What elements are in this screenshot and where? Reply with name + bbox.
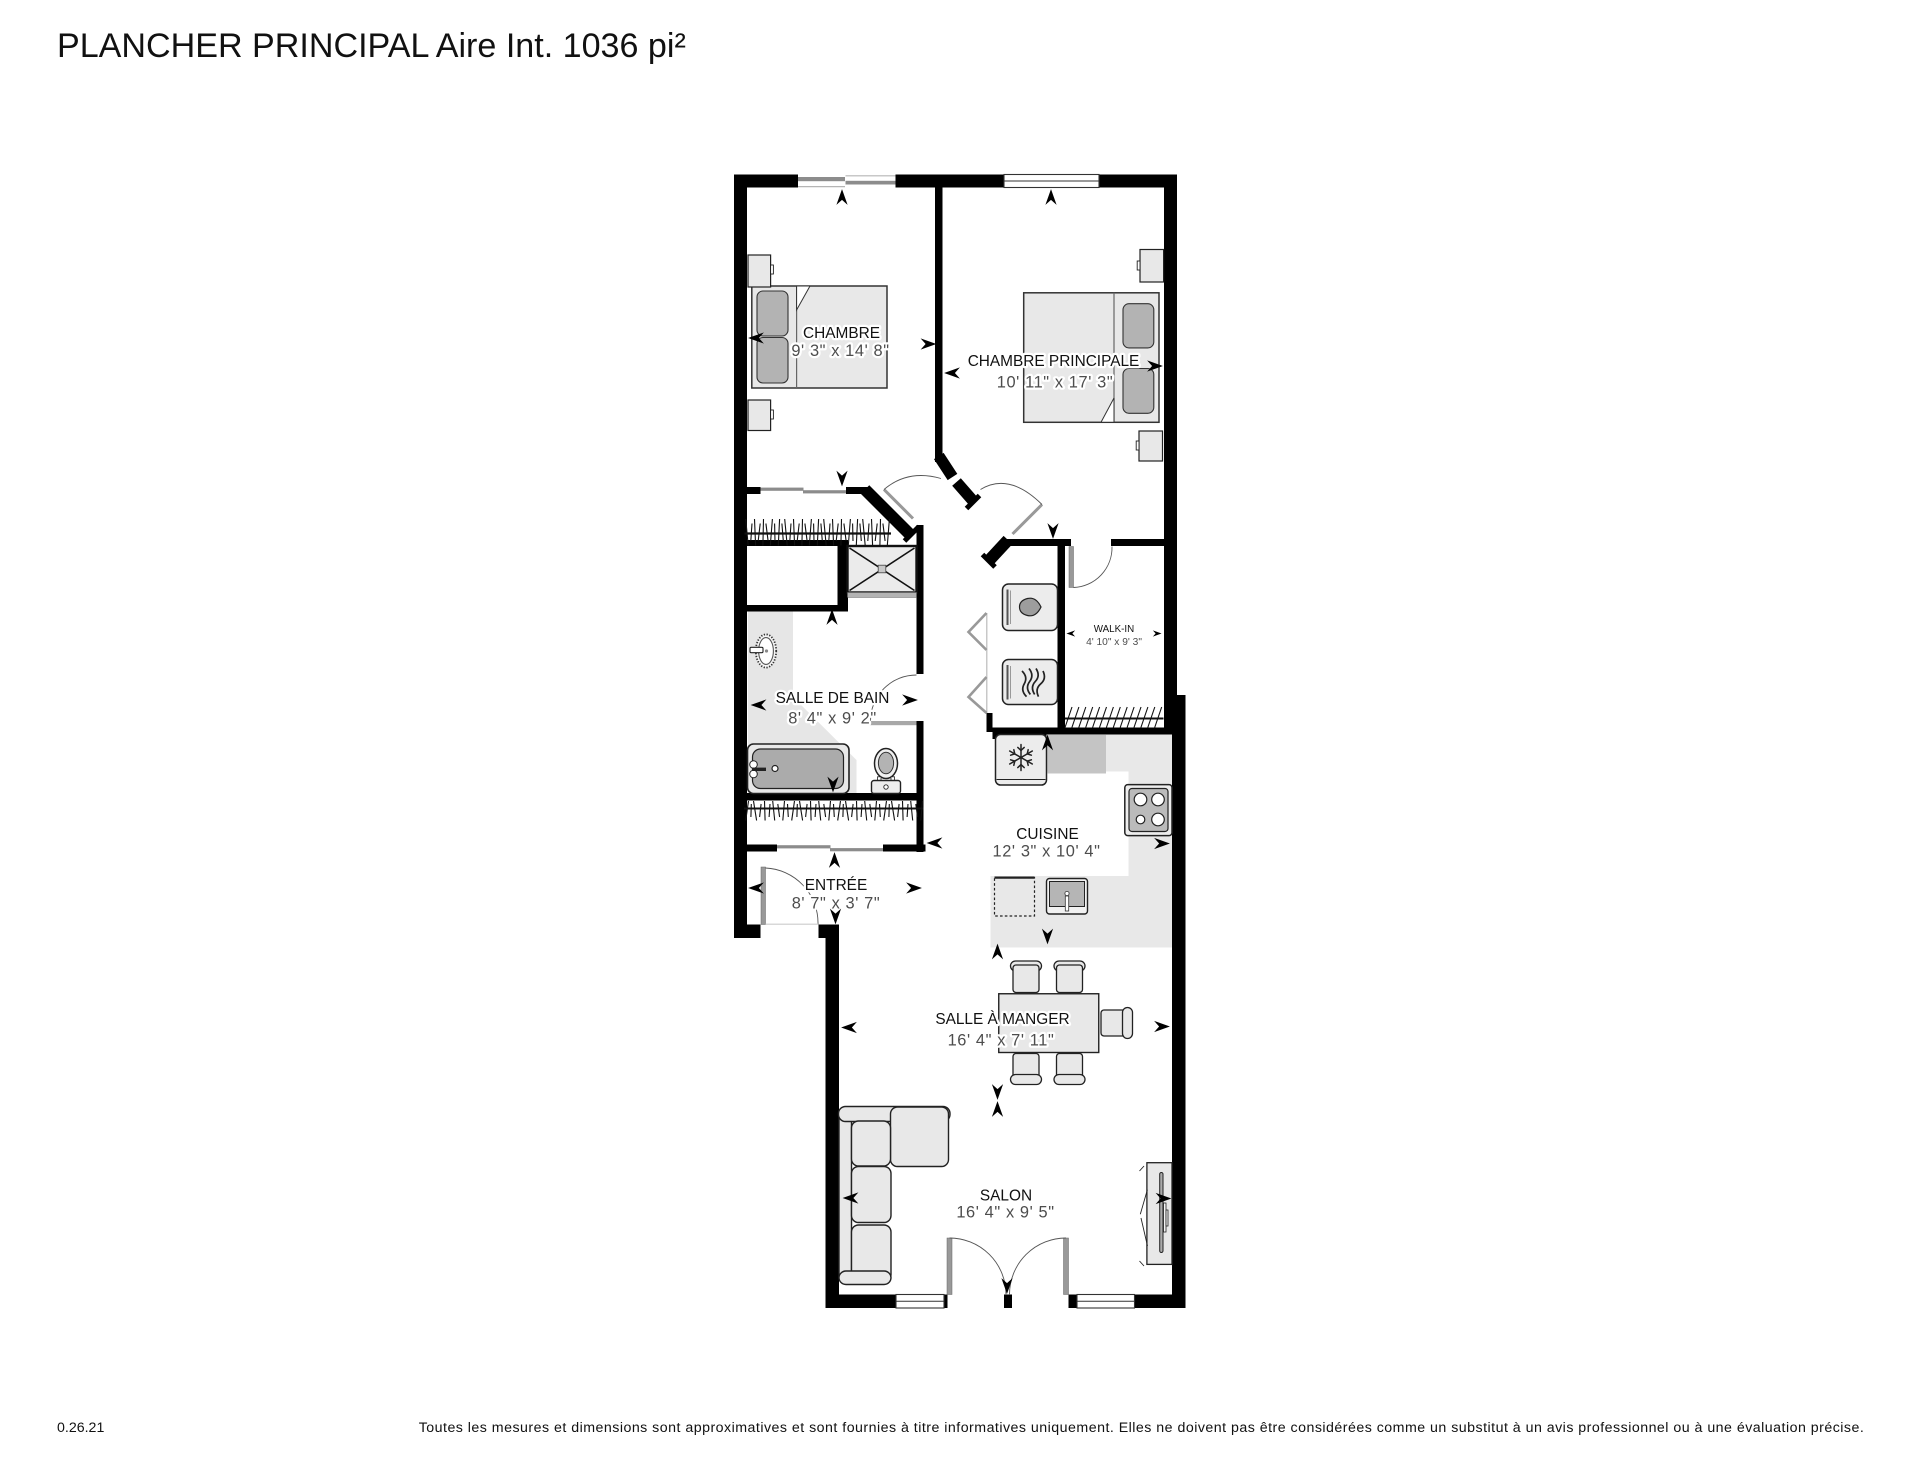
svg-text:SALON: SALON [980, 1188, 1032, 1205]
svg-text:PLANCHER PRINCIPAL Aire Int. 1: PLANCHER PRINCIPAL Aire Int. 1036 pi² [57, 27, 686, 65]
svg-text:Toutes les mesures et dimensio: Toutes les mesures et dimensions sont ap… [419, 1420, 1865, 1436]
svg-text:8' 7" x 3' 7": 8' 7" x 3' 7" [792, 895, 881, 913]
svg-text:12' 3" x 10' 4": 12' 3" x 10' 4" [993, 843, 1101, 861]
svg-text:SALLE DE BAIN: SALLE DE BAIN [776, 690, 890, 707]
svg-text:8' 4" x 9' 2": 8' 4" x 9' 2" [788, 710, 877, 728]
svg-text:CUISINE: CUISINE [1016, 826, 1078, 843]
svg-text:10' 11" x 17' 3": 10' 11" x 17' 3" [997, 374, 1114, 392]
svg-text:16' 4" x 9' 5": 16' 4" x 9' 5" [956, 1204, 1054, 1222]
svg-text:CHAMBRE: CHAMBRE [803, 325, 880, 342]
svg-text:0.26.21: 0.26.21 [57, 1420, 104, 1436]
svg-text:WALK-IN: WALK-IN [1094, 624, 1134, 635]
svg-text:ENTRÉE: ENTRÉE [805, 877, 867, 894]
svg-text:SALLE À MANGER: SALLE À MANGER [935, 1011, 1069, 1028]
svg-text:CHAMBRE PRINCIPALE: CHAMBRE PRINCIPALE [968, 353, 1140, 370]
svg-text:16' 4" x 7' 11": 16' 4" x 7' 11" [948, 1032, 1055, 1050]
svg-text:4' 10" x 9' 3": 4' 10" x 9' 3" [1086, 637, 1142, 648]
svg-text:9' 3" x 14' 8": 9' 3" x 14' 8" [791, 342, 889, 360]
